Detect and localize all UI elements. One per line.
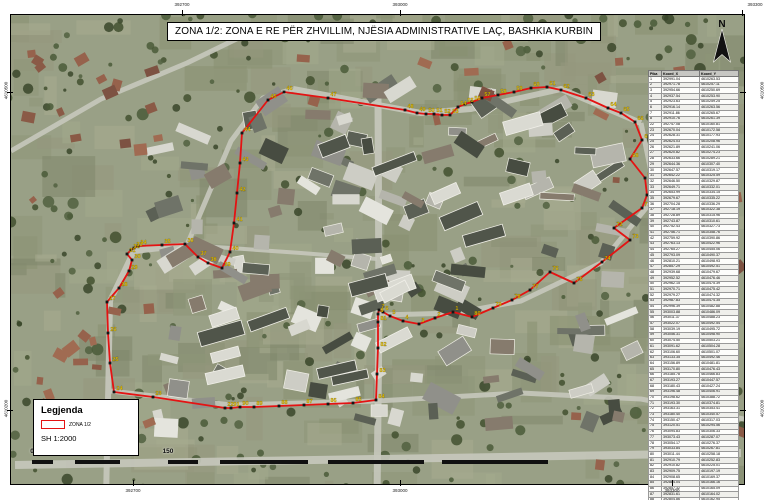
svg-text:30: 30: [134, 254, 140, 260]
scalebar-label: 150: [163, 448, 174, 455]
svg-text:47: 47: [330, 92, 336, 98]
svg-text:58: 58: [500, 89, 506, 95]
scalebar-segment: [75, 460, 120, 464]
svg-text:77: 77: [532, 284, 538, 290]
svg-text:68: 68: [632, 153, 638, 159]
svg-text:74: 74: [604, 256, 611, 262]
svg-text:N: N: [718, 19, 725, 30]
svg-text:45: 45: [270, 94, 276, 100]
svg-text:42: 42: [239, 187, 245, 193]
grid-tick: [400, 480, 401, 486]
svg-text:63: 63: [588, 92, 594, 98]
svg-text:78: 78: [514, 294, 520, 300]
svg-text:87: 87: [306, 399, 312, 405]
grid-tick: [740, 410, 746, 411]
map-title: ZONA 1/2: ZONA E RE PËR ZHVILLIM, NJËSIA…: [167, 22, 601, 41]
grid-label-bottom: 393300: [659, 488, 685, 493]
svg-text:41: 41: [236, 217, 242, 223]
svg-text:44: 44: [244, 127, 251, 133]
zone-swatch: [41, 420, 65, 429]
svg-text:43: 43: [242, 157, 248, 163]
svg-text:38: 38: [210, 257, 216, 263]
grid-tick: [400, 10, 401, 16]
svg-text:40: 40: [232, 246, 238, 252]
svg-text:46: 46: [286, 86, 292, 92]
svg-text:91: 91: [233, 402, 239, 408]
svg-text:61: 61: [549, 81, 555, 87]
grid-label-bottom: 392700: [120, 488, 146, 493]
svg-text:86: 86: [330, 398, 336, 404]
svg-text:52: 52: [444, 109, 450, 115]
scale-text: SH 1:2000: [41, 434, 131, 443]
grid-label-left: 4610200: [4, 396, 9, 422]
svg-text:90: 90: [242, 401, 248, 407]
svg-text:37: 37: [200, 251, 206, 257]
legend-title: Legjenda: [41, 405, 131, 416]
svg-text:89: 89: [256, 401, 262, 407]
legend: Legjenda ZONA 1/2 SH 1:2000: [33, 399, 139, 456]
svg-text:76: 76: [552, 266, 558, 272]
svg-text:79: 79: [495, 302, 501, 308]
svg-text:55: 55: [467, 98, 473, 104]
svg-text:3: 3: [421, 318, 424, 324]
grid-tick: [742, 10, 743, 16]
svg-text:85: 85: [355, 397, 361, 403]
svg-text:83: 83: [379, 368, 385, 374]
scalebar-segment: [168, 460, 198, 464]
grid-tick: [7, 410, 13, 411]
svg-text:60: 60: [533, 82, 539, 88]
svg-text:36: 36: [187, 238, 193, 244]
svg-text:81: 81: [380, 316, 386, 322]
grid-tick: [133, 480, 134, 486]
svg-text:39: 39: [224, 262, 230, 268]
north-arrow-glyph: [714, 29, 731, 62]
svg-text:54: 54: [460, 101, 467, 107]
scalebar-segment: [220, 460, 308, 464]
scalebar-segment: [328, 460, 424, 464]
svg-text:27: 27: [109, 296, 115, 302]
svg-text:80: 80: [474, 311, 480, 317]
svg-text:51: 51: [436, 108, 442, 114]
north-arrow: N: [700, 16, 744, 66]
zone-label: ZONA 1/2: [69, 422, 91, 428]
svg-text:73: 73: [632, 234, 638, 240]
svg-text:5: 5: [392, 310, 395, 316]
grid-label-left: 4610500: [4, 78, 9, 104]
grid-label-top: 393000: [387, 2, 413, 7]
grid-tick: [182, 10, 183, 16]
coordinate-table: PikaKoord_XKoord_Y 1392991.044610263.532…: [648, 70, 739, 500]
svg-text:84: 84: [378, 394, 385, 400]
svg-text:64: 64: [610, 102, 617, 108]
svg-text:48: 48: [407, 104, 413, 110]
scalebar-segment: [32, 460, 53, 464]
svg-text:82: 82: [380, 342, 386, 348]
svg-text:75: 75: [576, 277, 582, 283]
svg-text:50: 50: [428, 108, 434, 114]
map-sheet: 2223242526272829303132333435363738394041…: [0, 0, 768, 500]
svg-text:57: 57: [484, 92, 490, 98]
svg-text:56: 56: [474, 96, 480, 102]
svg-text:34: 34: [140, 240, 147, 246]
grid-label-top: 393300: [742, 2, 768, 7]
svg-text:6: 6: [385, 306, 388, 312]
svg-text:1: 1: [455, 306, 458, 312]
grid-label-right: 4610200: [760, 396, 765, 422]
svg-text:28: 28: [121, 282, 127, 288]
grid-label-top: 392700: [169, 2, 195, 7]
scalebar-segment: [442, 460, 548, 464]
svg-text:72: 72: [616, 222, 622, 228]
svg-text:35: 35: [164, 239, 170, 245]
svg-text:59: 59: [516, 86, 522, 92]
svg-text:24: 24: [116, 386, 123, 392]
svg-text:49: 49: [419, 107, 425, 113]
grid-tick: [7, 92, 13, 93]
svg-text:65: 65: [623, 107, 629, 113]
svg-text:62: 62: [563, 84, 569, 90]
grid-label-right: 4610500: [760, 78, 765, 104]
svg-text:29: 29: [131, 265, 137, 271]
svg-text:8: 8: [380, 308, 383, 314]
svg-text:53: 53: [452, 109, 458, 115]
svg-text:88: 88: [281, 400, 287, 406]
svg-text:66: 66: [637, 116, 643, 122]
grid-tick: [740, 92, 746, 93]
svg-text:2: 2: [437, 312, 440, 318]
grid-label-bottom: 393000: [387, 488, 413, 493]
grid-tick: [672, 480, 673, 486]
svg-text:23: 23: [155, 391, 161, 397]
svg-text:25: 25: [112, 357, 118, 363]
svg-text:26: 26: [110, 327, 116, 333]
